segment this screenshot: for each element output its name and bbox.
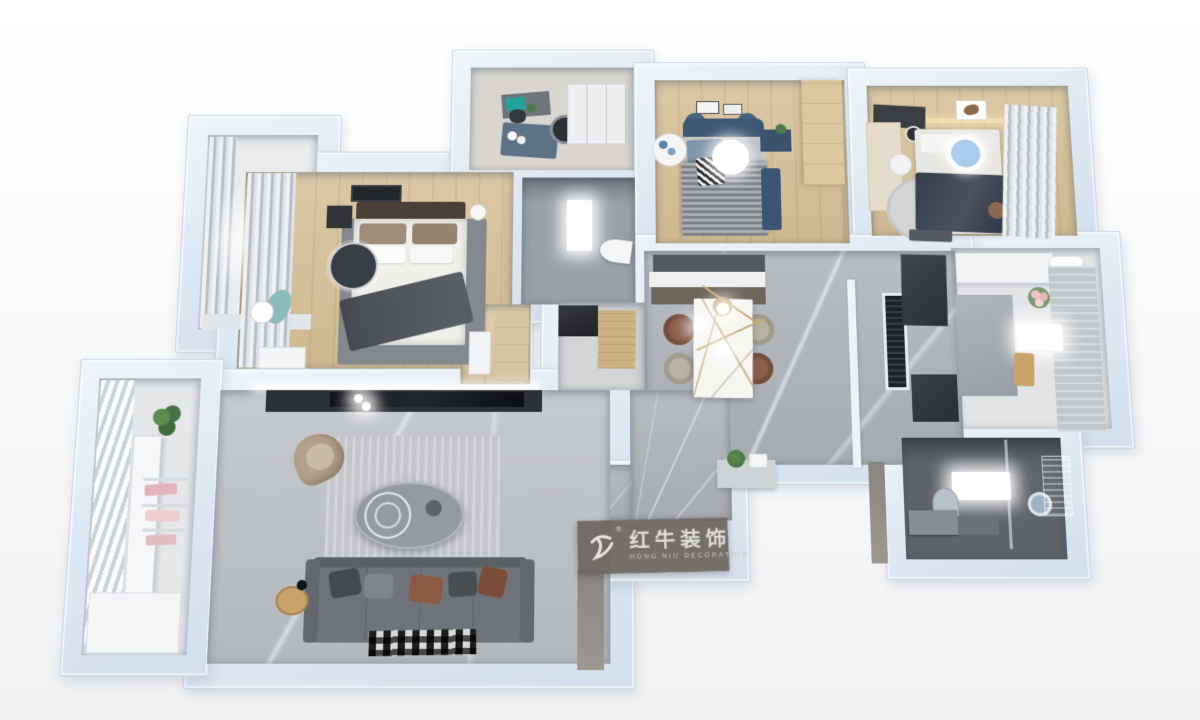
- bed2-wardrobe: [801, 80, 845, 185]
- bed2-wall-art-1: [696, 101, 719, 114]
- dining-chair-brown-tl: [663, 314, 695, 345]
- hanging-clothes-3: [146, 534, 177, 545]
- study-wardrobe: [567, 84, 627, 144]
- bath-master-fixture: [957, 516, 999, 534]
- kitchen-upper-cabinets: [955, 253, 1055, 284]
- master-ceiling-light-frame: [351, 185, 402, 202]
- master-pillow-brown-left: [359, 223, 407, 244]
- study-pillow-1: [507, 131, 517, 140]
- drying-rack-pole-2: [142, 504, 189, 507]
- master-pillow-white-right: [410, 246, 454, 263]
- entry-shoe-cabinet: [558, 305, 598, 336]
- living-pillow-gray: [364, 574, 393, 599]
- wall-side-face-left: [577, 570, 604, 670]
- study-pillow-2: [517, 136, 526, 144]
- bath-master-shower-screen: [1041, 456, 1073, 517]
- dining-pendant-globe-3: [715, 343, 729, 357]
- kitchen-tall-cabinet: [955, 295, 1018, 396]
- bath-mid-ceiling-light: [567, 200, 593, 251]
- bed2-wall-art-2: [723, 104, 742, 115]
- dining-sideboard-top: [649, 272, 765, 287]
- drying-rack-pole-3: [142, 529, 185, 532]
- bed2-nightstand: [760, 130, 791, 152]
- apartment-plan: ® 红牛装饰 HONG NIU DECORATION: [0, 25, 1200, 720]
- balcony-left-cabinet: [85, 592, 181, 653]
- living-led-strip: [254, 385, 538, 389]
- bed2-side-table-mug-2: [668, 148, 676, 155]
- hall-south-floor: [630, 390, 732, 520]
- kitchen-island-light: [1016, 324, 1063, 351]
- hallway-dark-panel-2: [911, 374, 959, 421]
- bath-master-vanity: [908, 510, 958, 534]
- living-patterned-mat: [369, 629, 477, 656]
- hallway-plant: [727, 450, 745, 468]
- living-sofa-armrest-right: [520, 559, 535, 642]
- closet-bench: [468, 331, 491, 374]
- master-nightstand: [326, 206, 352, 229]
- bath-master-ceiling-light: [951, 472, 1011, 500]
- master-foot-bench: [257, 347, 306, 368]
- drying-rack-pole-1: [143, 478, 188, 481]
- hanging-clothes-1: [145, 483, 178, 496]
- entry-wood-mat: [597, 310, 636, 369]
- bed2-ceiling-light: [712, 140, 749, 175]
- balcony-left-plant: [150, 402, 182, 436]
- floor-plan-render: ® 红牛装饰 HONG NIU DECORATION: [0, 0, 1200, 720]
- hanging-clothes-2: [145, 510, 180, 522]
- master-pillow-brown-right: [412, 223, 457, 244]
- closet-cabinet: [494, 308, 529, 380]
- bed3-curtain: [1002, 104, 1056, 239]
- hallway-white-box: [749, 454, 767, 468]
- registered-mark: ®: [616, 526, 621, 533]
- master-curtain: [239, 173, 297, 368]
- dining-chair-beige-bl: [664, 353, 696, 384]
- brand-name-cn: 红牛装饰: [629, 529, 749, 552]
- living-pillow-dark-1: [328, 567, 362, 599]
- study-chair: [509, 109, 526, 123]
- brand-watermark: ® 红牛装饰 HONG NIU DECORATION: [577, 518, 729, 575]
- dining-pendant-globe-2: [693, 320, 706, 333]
- study-plant: [527, 104, 536, 112]
- living-pillow-dark-2: [448, 571, 478, 598]
- bed2-navy-rug: [761, 168, 782, 230]
- bed2-side-table-mug-1: [659, 141, 668, 149]
- kitchen-cutting-board: [1014, 352, 1034, 386]
- bull-logo-icon: [587, 530, 622, 564]
- bed3-foot-mat: [909, 229, 952, 242]
- bath-master-wall-shade: [901, 438, 1061, 464]
- kitchen-flowers: [1028, 287, 1051, 308]
- living-pillow-rust-1: [408, 574, 444, 605]
- bed2-nightstand-plant: [775, 124, 786, 134]
- bed3-chair: [888, 153, 912, 175]
- hallway-dark-panel-1: [901, 254, 948, 326]
- dining-pendant-globe-1: [716, 303, 729, 316]
